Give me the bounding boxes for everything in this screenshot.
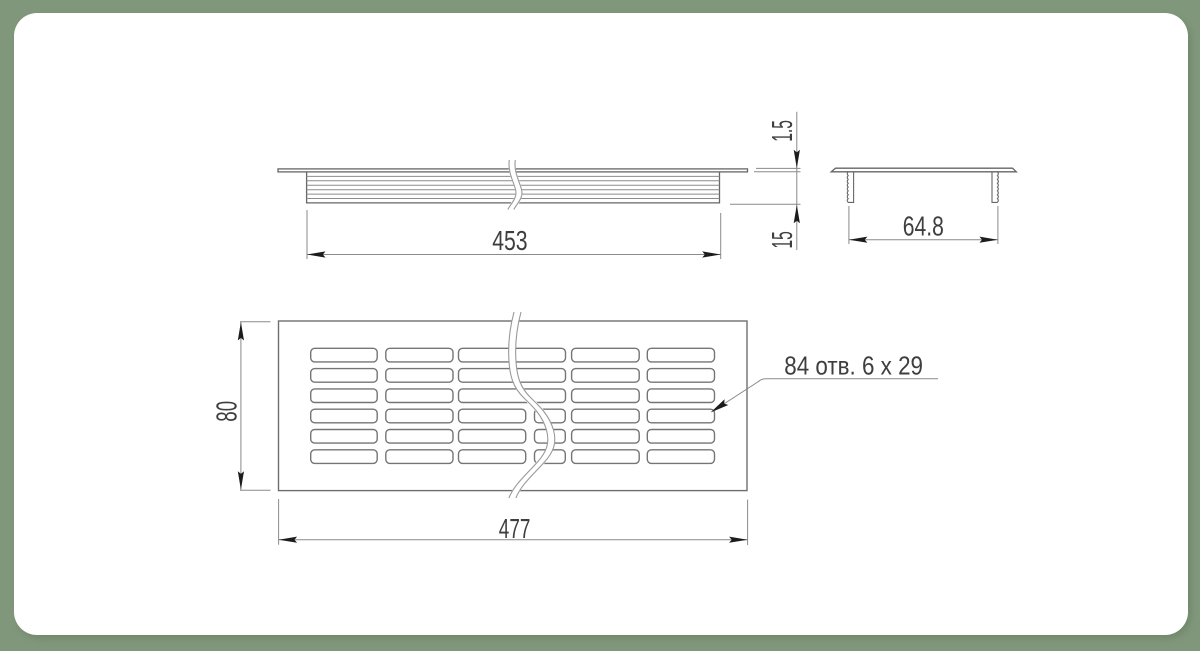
svg-text:453: 453 (492, 225, 527, 256)
svg-text:477: 477 (499, 513, 531, 544)
svg-text:64.8: 64.8 (903, 210, 944, 241)
svg-text:1.5: 1.5 (767, 120, 799, 142)
svg-text:15: 15 (767, 231, 799, 248)
svg-text:80: 80 (211, 401, 243, 422)
svg-text:84 отв. 6 x 29: 84 отв. 6 x 29 (784, 350, 923, 380)
